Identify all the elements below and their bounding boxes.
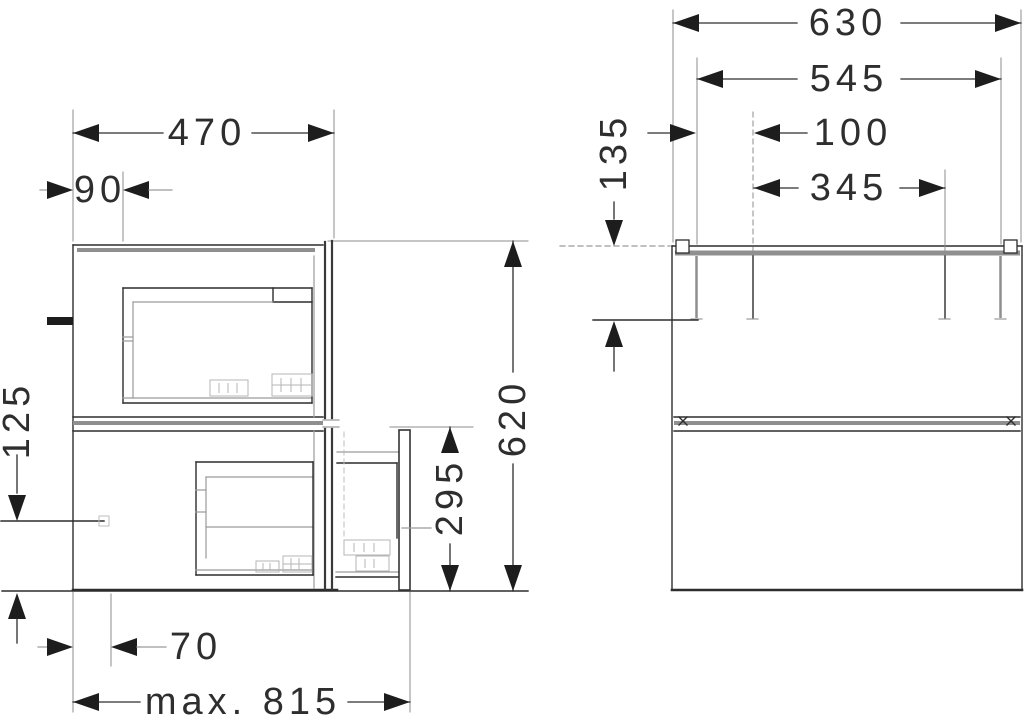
dim-345-label: 345 bbox=[810, 167, 888, 209]
dim-545-label: 545 bbox=[810, 58, 888, 100]
bottom-drawer-side bbox=[196, 462, 313, 575]
dim-height-620: 620 bbox=[492, 241, 534, 591]
dim-620-label: 620 bbox=[492, 379, 534, 457]
side-cabinet-outline bbox=[2, 241, 528, 591]
dim-125-label: 125 bbox=[0, 381, 38, 459]
side-view: 470 90 125 295 bbox=[0, 110, 534, 723]
dim-135-label: 135 bbox=[593, 113, 635, 191]
dim-front-offset-90: 90 bbox=[40, 169, 172, 241]
dim-max-extension-815: max. 815 bbox=[73, 592, 410, 723]
dim-630-label: 630 bbox=[809, 2, 887, 44]
vanity-dimension-drawing: 470 90 125 295 bbox=[0, 0, 1024, 725]
wall-mount-tick bbox=[47, 317, 73, 325]
top-drawer-slide-hardware bbox=[210, 374, 312, 396]
front-cabinet-outline bbox=[672, 246, 1022, 590]
dim-drain-height-125: 125 bbox=[0, 381, 38, 643]
open-drawer-front-panel bbox=[399, 430, 410, 590]
open-drawer-extension bbox=[336, 430, 431, 590]
dim-70-label: 70 bbox=[170, 626, 222, 668]
technical-drawing-page: 470 90 125 295 bbox=[0, 0, 1024, 725]
dim-100-label: 100 bbox=[814, 112, 892, 154]
top-drawer-side bbox=[123, 288, 312, 403]
dim-90-label: 90 bbox=[74, 169, 126, 211]
dim-max-815-label: max. 815 bbox=[145, 681, 341, 723]
dim-295-label: 295 bbox=[429, 458, 471, 536]
dim-470-label: 470 bbox=[168, 112, 246, 154]
mounting-rails bbox=[691, 256, 1006, 319]
front-view: 630 545 100 345 bbox=[560, 2, 1022, 590]
dim-mount-inner-345: 345 bbox=[754, 167, 945, 252]
